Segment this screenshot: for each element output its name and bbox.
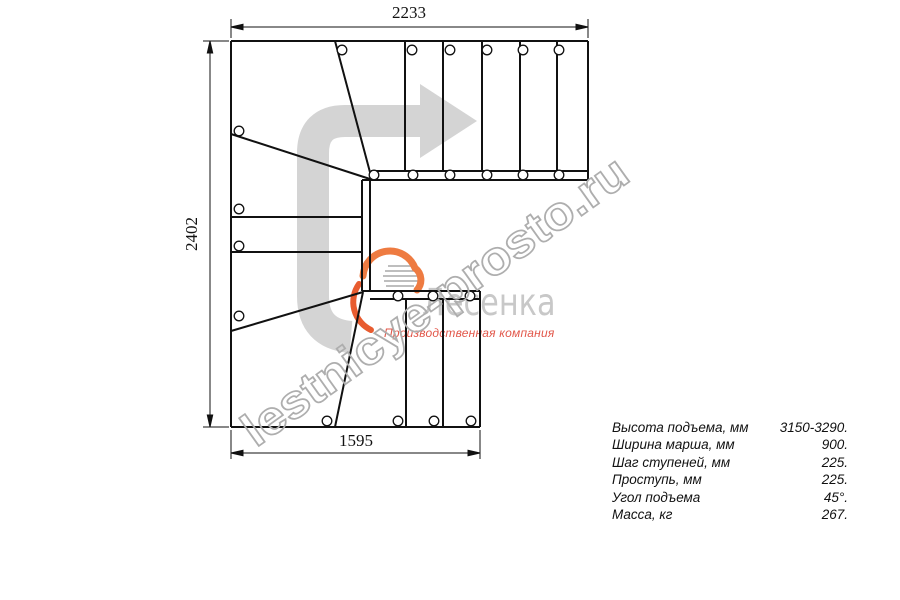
spec-row: Проступь, мм 225. (612, 471, 848, 488)
spec-table: Высота подъема, мм 3150-3290. Ширина мар… (612, 419, 848, 523)
dimension-label-top: 2233 (392, 3, 426, 22)
spec-label: Шаг ступеней, мм (612, 454, 730, 471)
watermark-site-text: lestnicye-prosto.ru (231, 145, 638, 456)
spec-row: Шаг ступеней, мм 225. (612, 454, 848, 471)
spec-label: Проступь, мм (612, 471, 702, 488)
spec-value: 225. (822, 454, 848, 471)
spec-row: Угол подъема 45°. (612, 489, 848, 506)
stair-drawing-page: Лесенка Производственная компания (0, 0, 900, 600)
dimension-label-left: 2402 (182, 217, 201, 251)
spec-value: 45°. (824, 489, 848, 506)
spec-label: Угол подъема (612, 489, 700, 506)
spec-value: 225. (822, 471, 848, 488)
spec-label: Ширина марша, мм (612, 436, 735, 453)
direction-arrow-head (420, 84, 477, 158)
spec-row: Ширина марша, мм 900. (612, 436, 848, 453)
spec-label: Высота подъема, мм (612, 419, 748, 436)
spec-row: Масса, кг 267. (612, 506, 848, 523)
spec-value: 900. (822, 436, 848, 453)
spec-value: 3150-3290. (780, 419, 848, 436)
spec-row: Высота подъема, мм 3150-3290. (612, 419, 848, 436)
dimension-label-bottom: 1595 (339, 431, 373, 450)
spec-value: 267. (822, 506, 848, 523)
spec-label: Масса, кг (612, 506, 672, 523)
